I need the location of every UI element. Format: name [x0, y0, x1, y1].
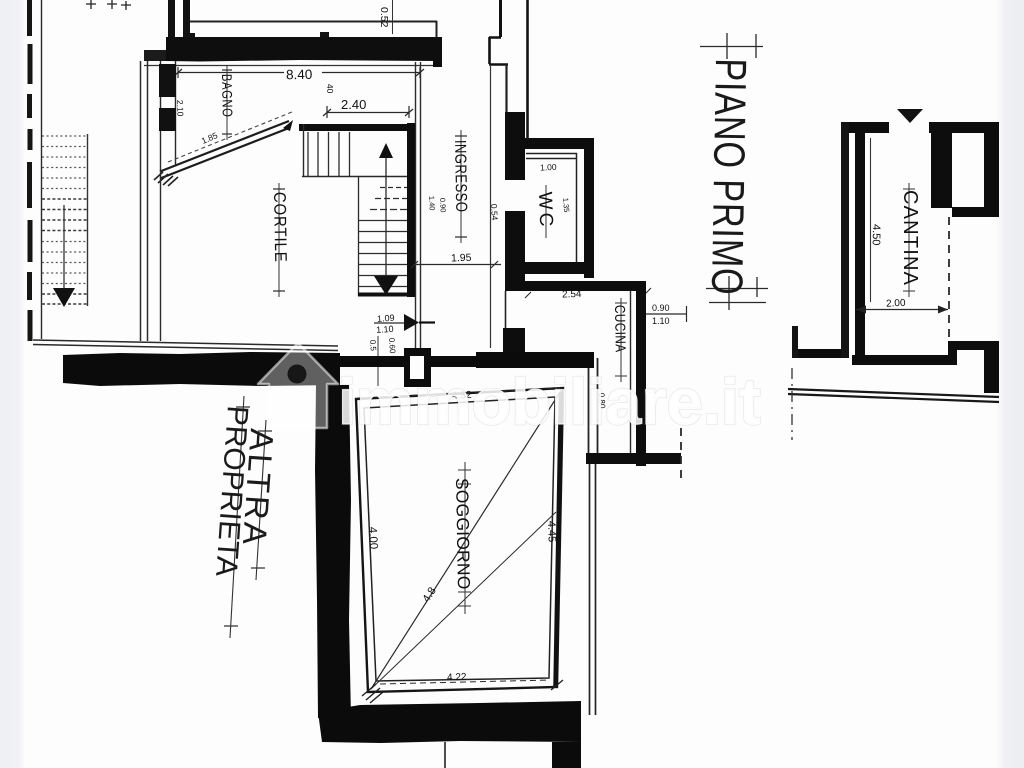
svg-text:1.09: 1.09	[377, 313, 395, 324]
svg-text:4.45: 4.45	[545, 521, 558, 543]
svg-text:2.54: 2.54	[562, 289, 582, 301]
svg-text:1.95: 1.95	[451, 252, 472, 265]
svg-text:0.5: 0.5	[368, 340, 378, 352]
svg-text:PIANO PRIMO: PIANO PRIMO	[702, 58, 755, 296]
svg-text:immobiliare.it: immobiliare.it	[338, 365, 761, 438]
svg-text:WC: WC	[534, 191, 556, 229]
svg-text:CANTINA: CANTINA	[899, 190, 921, 286]
svg-text:1.10: 1.10	[652, 316, 670, 326]
svg-text:BAGNO: BAGNO	[219, 74, 235, 118]
svg-text:1.40: 1.40	[427, 196, 437, 211]
svg-text:4.22: 4.22	[447, 672, 467, 684]
svg-text:0.90: 0.90	[652, 303, 670, 313]
svg-text:2.00: 2.00	[886, 298, 906, 310]
svg-text:0.54: 0.54	[489, 204, 500, 221]
svg-text:4.00: 4.00	[366, 527, 379, 550]
svg-text:1.00: 1.00	[540, 162, 557, 173]
svg-text:1.35: 1.35	[561, 197, 571, 212]
svg-text:CORTILE: CORTILE	[270, 192, 289, 263]
svg-text:0.52: 0.52	[378, 7, 390, 28]
svg-text:SOGGIORNO: SOGGIORNO	[452, 478, 474, 590]
svg-text:0.90: 0.90	[438, 198, 448, 213]
svg-text:1.10: 1.10	[376, 324, 394, 335]
svg-text:40: 40	[325, 84, 335, 94]
svg-text:2.40: 2.40	[341, 97, 366, 112]
svg-text:8.40: 8.40	[286, 67, 313, 82]
svg-text:CUCINA: CUCINA	[612, 305, 629, 353]
svg-text:4.50: 4.50	[870, 224, 882, 246]
svg-text:INGRESSO: INGRESSO	[451, 140, 470, 213]
svg-text:2.10: 2.10	[175, 100, 186, 117]
svg-text:0.60: 0.60	[387, 338, 397, 355]
